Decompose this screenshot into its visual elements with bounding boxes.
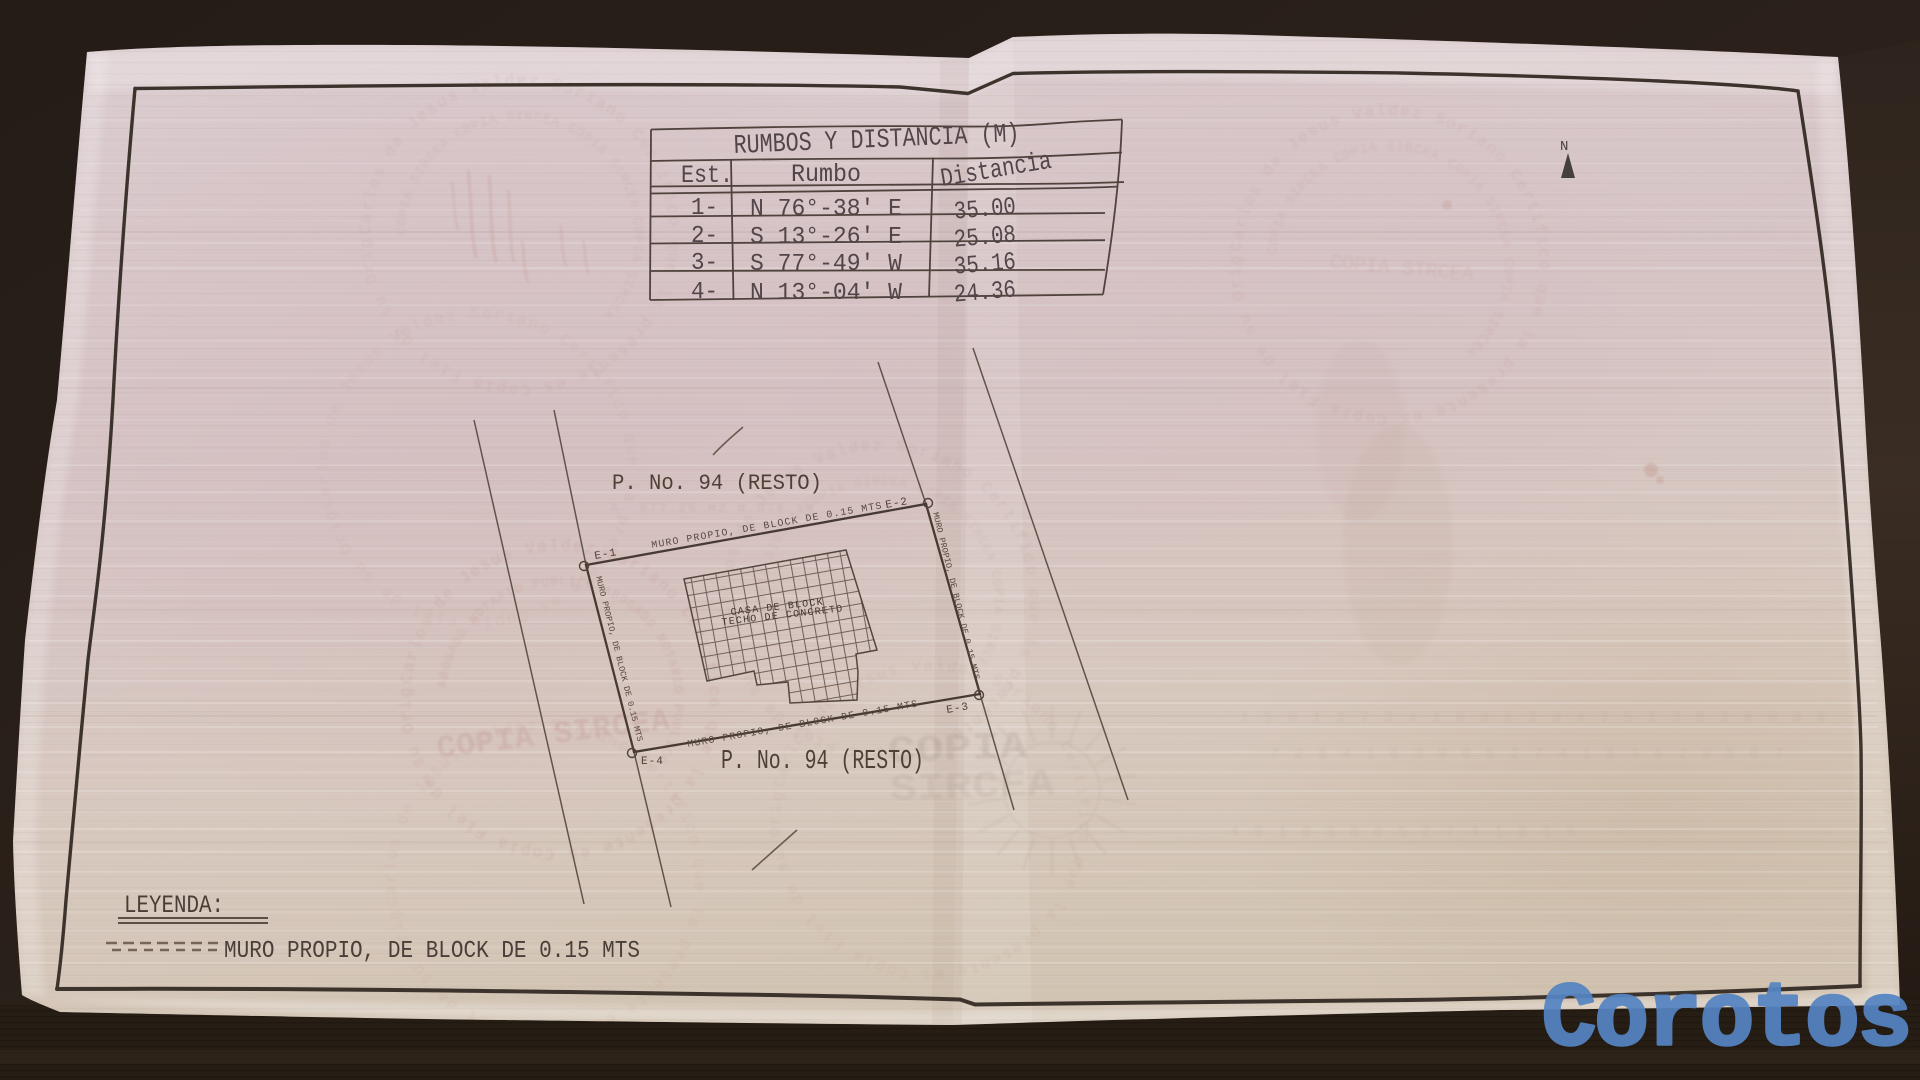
svg-text:S 77°-49' W: S 77°-49' W: [750, 251, 903, 278]
svg-text:Corotos: Corotos: [1542, 970, 1912, 1072]
svg-text:P. No. 94 (RESTO): P. No. 94 (RESTO): [612, 471, 822, 496]
svg-text:Est.: Est.: [681, 161, 733, 190]
svg-text:7 2 8 4 1 6 3 9 0 5 2 7 4 1 8: 7 2 8 4 1 6 3 9 0 5 2 7 4 1 8 3 6 2 9 5 …: [1270, 746, 1786, 763]
svg-text:1 5 0 1 2 7 3 4 1 0 8 6 2 9 4: 1 5 0 1 2 7 3 4 1 0 8 6 2 9 4 7 5 1 3 8 …: [1240, 710, 1828, 727]
svg-text:2-: 2-: [691, 223, 718, 250]
svg-text:1-: 1-: [691, 195, 718, 222]
svg-text:24.36: 24.36: [953, 275, 1017, 309]
svg-text:MURO PROPIO, DE BLOCK DE 0.15: MURO PROPIO, DE BLOCK DE 0.15 MTS: [224, 938, 640, 965]
svg-text:N: N: [1560, 139, 1568, 155]
svg-text:4 9 1 6 3 8 0 5 2 7 4 1 8 3 6: 4 9 1 6 3 8 0 5 2 7 4 1 8 3 6: [1230, 824, 1578, 841]
svg-text:LEYENDA:: LEYENDA:: [124, 891, 224, 920]
svg-text:S 13°-26' E: S 13°-26' E: [750, 224, 902, 251]
svg-text:Rumbo: Rumbo: [791, 160, 861, 189]
svg-text:P. No. 94 (RESTO): P. No. 94 (RESTO): [721, 747, 924, 777]
svg-text:3-: 3-: [691, 250, 718, 277]
svg-text:E-4: E-4: [641, 756, 664, 768]
svg-text:A- 877.25 M2 N.876.50: A- 877.25 M2 N.876.50: [610, 501, 816, 516]
svg-text:N 76°-38' E: N 76°-38' E: [750, 196, 902, 223]
svg-text:N 13°-04' W: N 13°-04' W: [750, 280, 903, 307]
svg-text:4-: 4-: [691, 279, 718, 306]
